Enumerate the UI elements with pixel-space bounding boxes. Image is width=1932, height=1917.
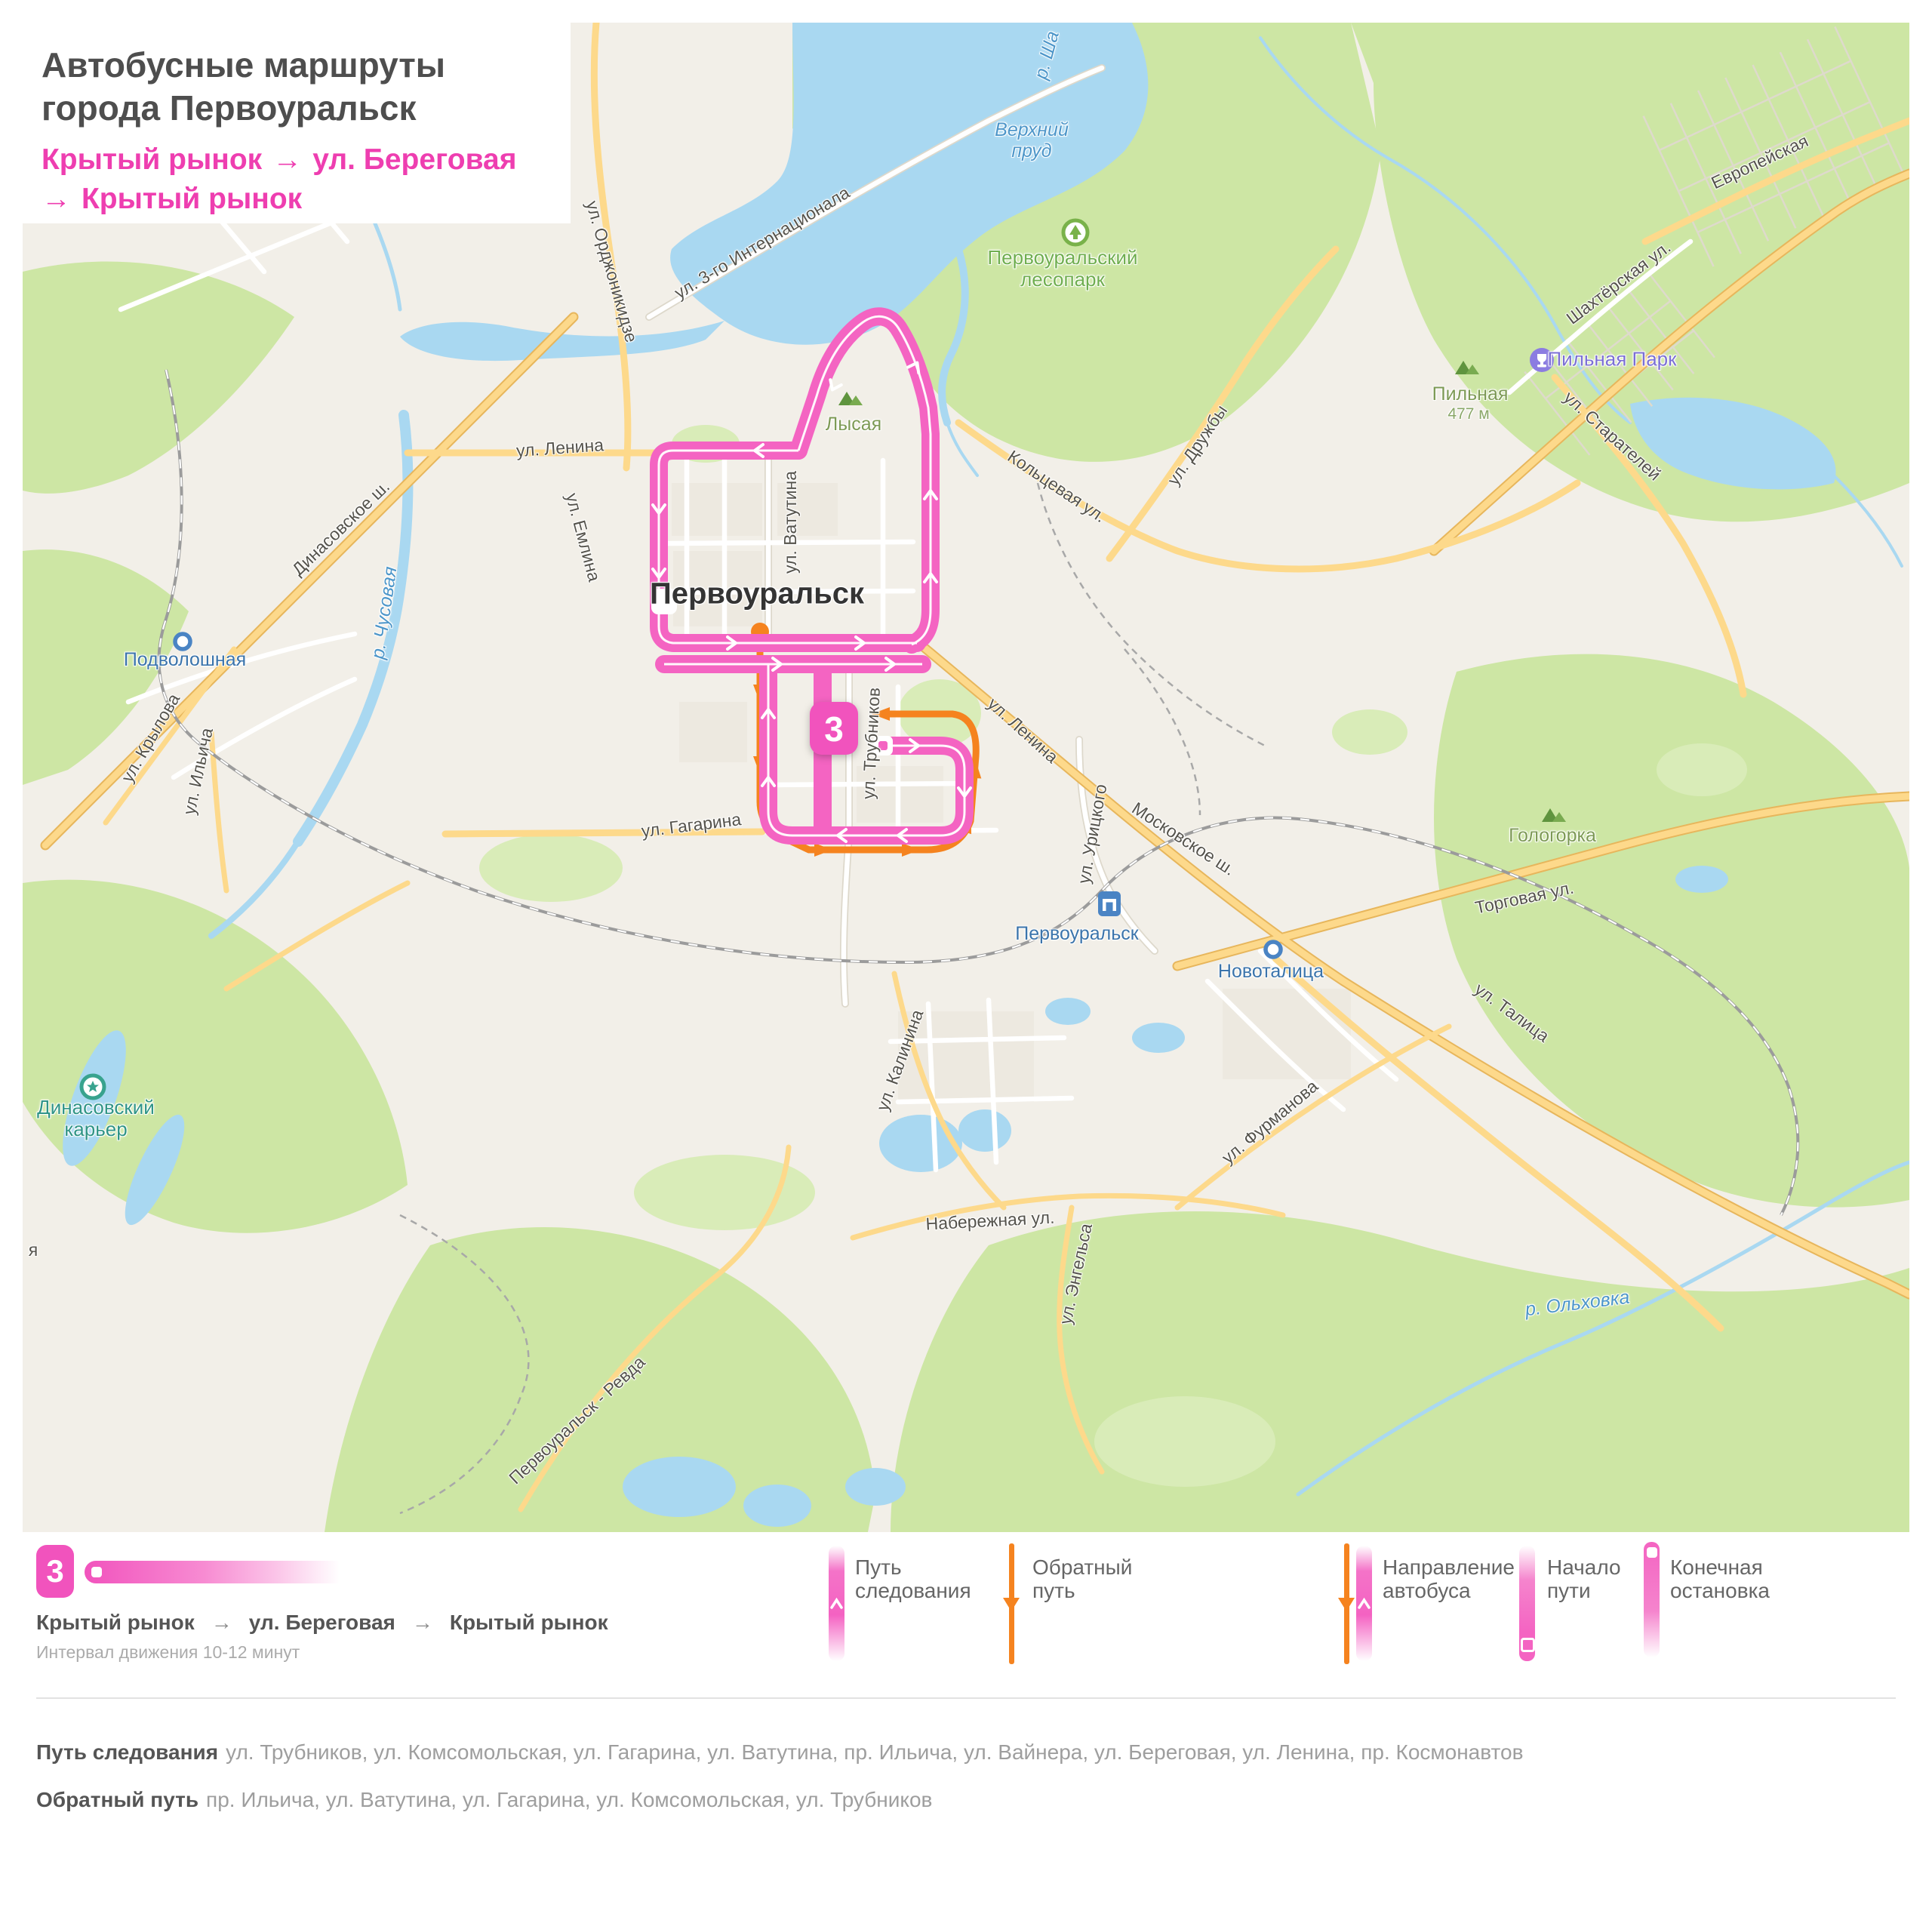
terminal-stop-bar-icon (1644, 1542, 1660, 1657)
route-via: ул. Береговая (312, 143, 516, 176)
page-title-line2: города Первоуральск (42, 88, 416, 128)
reverse-path-icon (1009, 1543, 1014, 1664)
station-ring-icon (175, 634, 190, 649)
map-canvas: 3 (23, 23, 1909, 1532)
quarry-icon (82, 1075, 104, 1098)
forward-route-list: Путь следованияул. Трубников, ул. Комсом… (36, 1740, 1893, 1765)
arrow-icon: → (195, 1611, 249, 1634)
legend-item-label: Начало пути (1547, 1555, 1621, 1602)
forward-direction-icon (1356, 1546, 1372, 1661)
forward-route-streets: ул. Трубников, ул. Комсомольская, ул. Га… (226, 1740, 1523, 1764)
legend-route-gradient-bar (85, 1561, 350, 1583)
forward-route-label: Путь следования (36, 1740, 226, 1764)
title-card: Автобусные маршруты города Первоуральск … (23, 23, 571, 223)
station-rail-icon (1098, 891, 1121, 916)
map-route-badge-number: 3 (824, 709, 844, 749)
arrow-icon: → (42, 183, 82, 215)
route-start-bar-icon (1519, 1546, 1535, 1661)
stop-name: ул. Береговая (249, 1611, 395, 1634)
route-to: Крытый рынок (82, 183, 302, 215)
page-title: Автобусные маршруты города Первоуральск (42, 44, 571, 130)
forward-path-icon (829, 1546, 844, 1661)
city-map: 3 Первоуральскул. Орджоникидзеул. 3-го И… (23, 23, 1909, 1532)
reverse-route-list: Обратный путьпр. Ильича, ул. Ватутина, у… (36, 1788, 1893, 1812)
legend-item-label: Конечная остановка (1670, 1555, 1770, 1602)
legend-item-label: Путь следования (855, 1555, 971, 1602)
route-start-marker (873, 736, 893, 755)
route-start-icon (91, 1567, 102, 1577)
map-route-badge: 3 (810, 702, 858, 755)
arrow-icon: → (262, 143, 312, 176)
park-violet-icon (1530, 348, 1554, 372)
park-icon (1063, 220, 1088, 245)
legend-item-label: Направление автобуса (1383, 1555, 1515, 1602)
bus-route-poster: 3 Первоуральскул. Орджоникидзеул. 3-го И… (0, 0, 1932, 1917)
route-from: Крытый рынок (42, 143, 262, 176)
legend-route-stops: Крытый рынок→ул. Береговая→Крытый рынок (36, 1611, 608, 1635)
station-ring-icon (1266, 942, 1281, 957)
stop-name: Крытый рынок (450, 1611, 608, 1634)
legend-item-label: Обратный путь (1032, 1555, 1132, 1602)
stop-name: Крытый рынок (36, 1611, 195, 1634)
reverse-route-streets: пр. Ильича, ул. Ватутина, ул. Гагарина, … (206, 1788, 932, 1811)
route-interval: Интервал движения 10-12 минут (36, 1642, 300, 1663)
terminal-stop-marker (651, 589, 677, 614)
divider (36, 1697, 1896, 1699)
route-endpoints: Крытый рынок→ул. Береговая →Крытый рынок (42, 140, 571, 219)
page-title-line1: Автобусные маршруты (42, 45, 445, 85)
legend-route-badge: 3 (36, 1545, 74, 1598)
arrow-icon: → (395, 1611, 450, 1634)
reverse-route-label: Обратный путь (36, 1788, 206, 1811)
reverse-direction-icon (1344, 1543, 1349, 1664)
